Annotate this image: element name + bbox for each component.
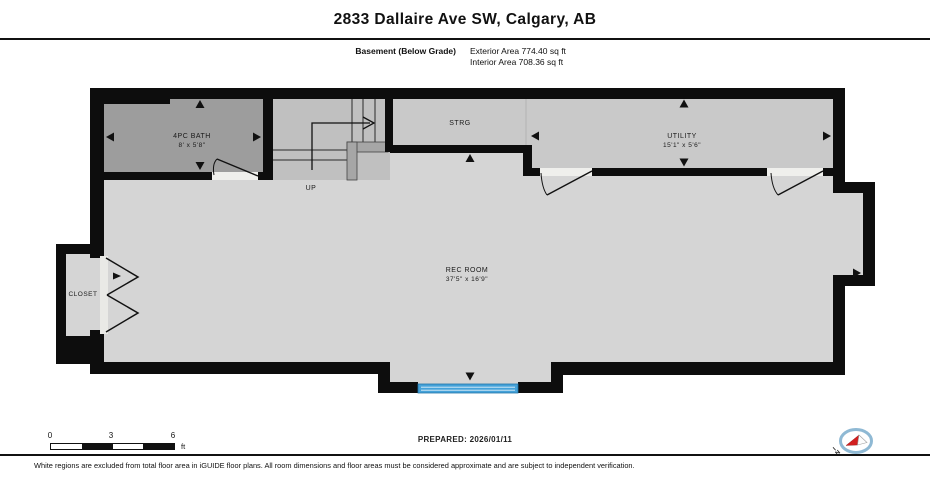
dimension-arrows xyxy=(106,100,861,381)
rec-room-arrow-up-icon xyxy=(466,154,475,162)
window-bay-floor xyxy=(388,360,553,386)
scale-bar-segments xyxy=(50,443,175,450)
bath-door-arc xyxy=(213,159,217,175)
bath-arrow-down-icon xyxy=(196,162,205,170)
bath-door xyxy=(217,159,258,176)
doors xyxy=(106,159,823,332)
stair-direction-arrow-icon xyxy=(363,117,374,129)
bath-arrow-up-icon xyxy=(196,100,205,108)
utility-arrow-up-icon xyxy=(680,100,689,108)
stairs-floor xyxy=(265,96,390,180)
utility-left-door xyxy=(547,171,592,195)
window xyxy=(418,384,518,393)
walls xyxy=(56,88,875,393)
utility-arrow-left-icon xyxy=(531,132,539,141)
bath-door-opening xyxy=(212,172,258,180)
exterior-area: Exterior Area 774.40 sq ft xyxy=(470,46,566,57)
utility-arrow-down-icon xyxy=(680,159,689,167)
footer-divider xyxy=(0,454,930,456)
closet-bifold-door-top xyxy=(106,258,138,295)
utility-left-door-opening xyxy=(540,168,592,176)
floor-plan-page: 2833 Dallaire Ave SW, Calgary, AB Baseme… xyxy=(0,0,930,500)
bath-room-label: 4PC BATH xyxy=(173,133,211,140)
disclaimer-text: White regions are excluded from total fl… xyxy=(34,461,635,470)
stairs xyxy=(268,97,388,180)
door-openings xyxy=(100,168,823,334)
utility-right-door-arc xyxy=(771,173,778,195)
closet-room-label: CLOSET xyxy=(68,291,97,298)
utility-right-door xyxy=(778,171,823,195)
utility-left-door-arc xyxy=(541,173,547,195)
utility-room-label: UTILITY xyxy=(667,133,697,140)
rec-room-label: REC ROOM xyxy=(446,267,489,274)
storage-room-label: STRG xyxy=(449,120,470,127)
utility-room-dims: 15'1" x 5'6" xyxy=(663,142,701,149)
stair-landing xyxy=(347,142,388,152)
title-divider xyxy=(0,38,930,40)
closet-bifold-door-bottom xyxy=(106,295,138,332)
closet-arrow-icon xyxy=(113,273,121,280)
bath-arrow-right-icon xyxy=(253,133,261,142)
rec-room-floor xyxy=(62,94,865,386)
rec-room-dims: 37'5" x 16'9" xyxy=(446,276,488,283)
stairs-up-label: UP xyxy=(306,185,317,192)
bath-arrow-left-icon xyxy=(106,133,114,142)
rec-room-arrow-right-icon xyxy=(853,269,861,278)
right-nook-floor xyxy=(833,190,865,277)
floor-name-label: Basement (Below Grade) xyxy=(0,46,456,56)
storage-utility-floor xyxy=(390,96,843,172)
bath-room-dims: 8' x 5'8" xyxy=(179,142,206,149)
rec-room-arrow-down-icon xyxy=(466,373,475,381)
interior-area: Interior Area 708.36 sq ft xyxy=(470,57,566,68)
utility-right-door-opening xyxy=(767,168,823,176)
area-summary: Exterior Area 774.40 sq ft Interior Area… xyxy=(470,46,566,68)
floor-plan: 4PC BATH 8' x 5'8" STRG UTILITY 15'1" x … xyxy=(0,0,930,500)
page-title: 2833 Dallaire Ave SW, Calgary, AB xyxy=(0,11,930,29)
prepared-date: PREPARED: 2026/01/11 xyxy=(0,435,930,444)
closet-floor xyxy=(62,250,104,340)
bath-floor xyxy=(100,96,268,174)
closet-opening xyxy=(100,256,108,334)
stair-direction-line xyxy=(312,123,370,170)
stair-railing xyxy=(347,142,357,180)
utility-arrow-right-icon xyxy=(823,132,831,141)
